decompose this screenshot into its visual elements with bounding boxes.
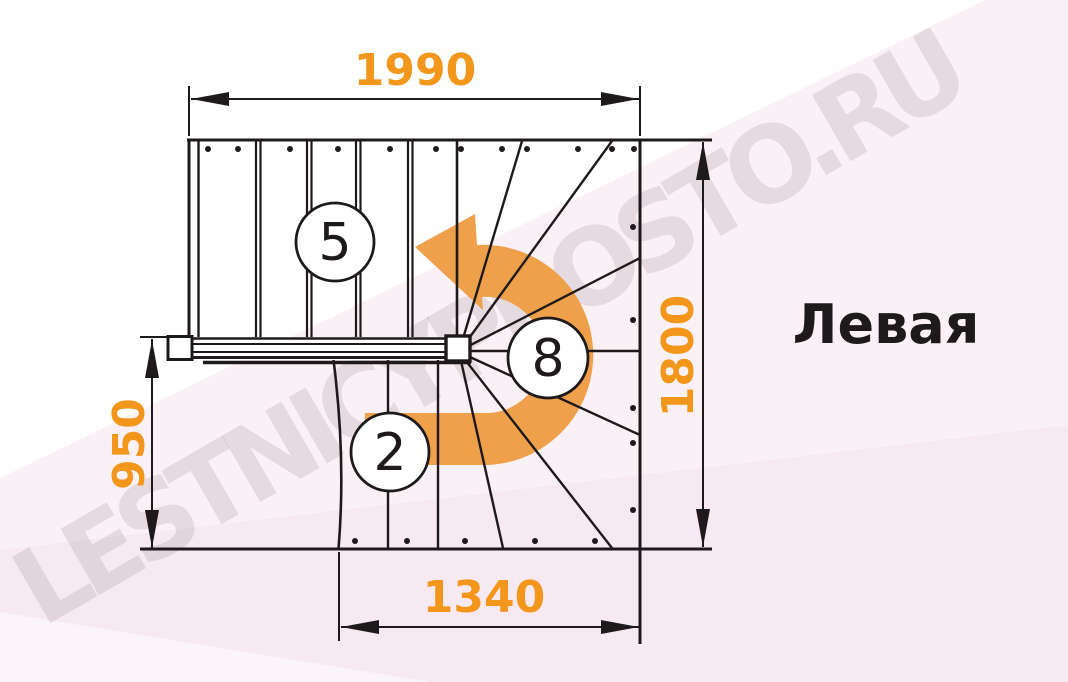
dimension-value-bottom: 1340	[423, 572, 545, 623]
side-label: Левая	[793, 293, 980, 356]
step-number: 2	[373, 423, 406, 483]
diagram-canvas: LESTNICYPROSTO.RU	[0, 0, 1068, 682]
newel-post-left	[168, 337, 192, 360]
step-number: 5	[318, 213, 351, 273]
staircase-diagram-page: LESTNICYPROSTO.RU	[0, 0, 1068, 682]
newel-post-center	[446, 336, 470, 361]
handrail-assembly	[168, 336, 471, 363]
dimension-value-left: 950	[104, 398, 155, 490]
dimension-value-right: 1800	[653, 295, 704, 417]
step-marker-winder: 8	[508, 318, 588, 398]
dimension-value-top: 1990	[354, 45, 476, 96]
step-marker-lower: 2	[351, 413, 429, 491]
step-marker-upper: 5	[296, 203, 374, 281]
step-number: 8	[531, 329, 564, 389]
